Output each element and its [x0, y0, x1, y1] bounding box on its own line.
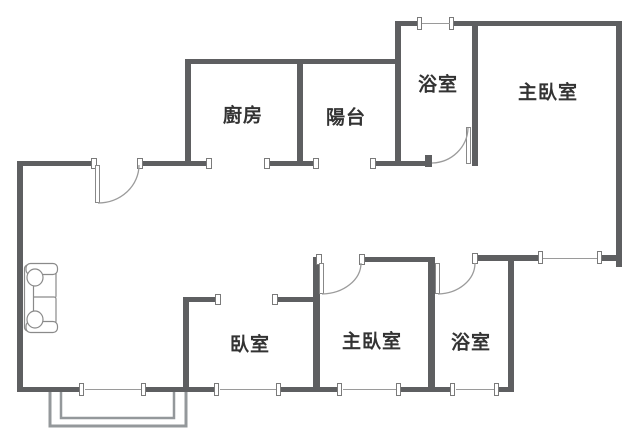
door-jamb — [359, 254, 365, 265]
window-tick — [276, 383, 281, 396]
window-glass-line — [343, 389, 396, 390]
door-jamb — [264, 158, 270, 169]
door-jamb — [215, 294, 221, 305]
door-swing-arc — [322, 263, 361, 294]
balcony-railing — [50, 392, 186, 426]
window-tick — [396, 383, 401, 396]
window-glass-line — [220, 389, 276, 390]
room-label-master-bedroom-bottom: 主臥室 — [342, 327, 402, 354]
door-jamb — [206, 158, 212, 169]
balcony-railing — [61, 392, 174, 418]
window-tick — [597, 251, 602, 264]
window-glass-line — [543, 258, 597, 259]
wall — [142, 161, 208, 166]
wall — [401, 387, 452, 392]
room-label-bathroom-bottom: 浴室 — [451, 328, 491, 355]
room-label-bedroom: 臥室 — [230, 330, 270, 357]
window-tick — [141, 383, 146, 396]
door-leaf — [319, 263, 324, 294]
window-tick — [337, 383, 342, 396]
window-tick — [494, 383, 499, 396]
wall — [475, 255, 539, 261]
window-tick — [450, 383, 455, 396]
wall — [276, 297, 315, 302]
wall-end-post — [425, 155, 432, 167]
wall — [185, 59, 191, 166]
window-glass-line — [422, 23, 450, 24]
wall — [428, 257, 435, 392]
room-label-kitchen: 廚房 — [223, 101, 263, 128]
wall — [17, 161, 23, 392]
window-tick — [79, 383, 84, 396]
wall — [281, 387, 339, 392]
room-label-master-bedroom-top: 主臥室 — [518, 78, 578, 105]
door-swing-arc — [432, 128, 468, 163]
floorplan-canvas: 廚房 陽台 浴室 主臥室 臥室 主臥室 浴室 — [0, 0, 640, 445]
door-jamb — [137, 158, 143, 169]
wall — [183, 297, 189, 392]
door-jamb — [370, 158, 376, 169]
wall — [616, 21, 622, 267]
door-swing-arc — [438, 263, 475, 294]
wall — [395, 21, 401, 166]
wall — [376, 161, 426, 166]
wall — [508, 257, 514, 392]
door-jamb — [472, 253, 478, 264]
window-tick — [214, 383, 219, 396]
wall — [365, 257, 429, 262]
wall — [146, 387, 215, 392]
door-leaf — [466, 127, 471, 164]
room-label-bathroom-top: 浴室 — [418, 70, 458, 97]
door-swing-arc — [98, 165, 139, 203]
door-jamb — [272, 294, 278, 305]
window-glass-line — [456, 389, 494, 390]
wall — [17, 387, 80, 392]
wall — [297, 63, 303, 166]
wall — [453, 21, 622, 26]
door-leaf — [435, 263, 440, 294]
wall — [17, 161, 92, 166]
wall — [185, 59, 398, 64]
wall — [269, 161, 315, 166]
wall — [472, 25, 478, 166]
door-jamb — [313, 158, 319, 169]
room-label-balcony: 陽台 — [326, 103, 366, 130]
plan-symbols-layer — [0, 0, 640, 445]
window-glass-line — [85, 389, 141, 390]
door-leaf — [95, 165, 100, 203]
sofa-icon — [25, 264, 58, 333]
